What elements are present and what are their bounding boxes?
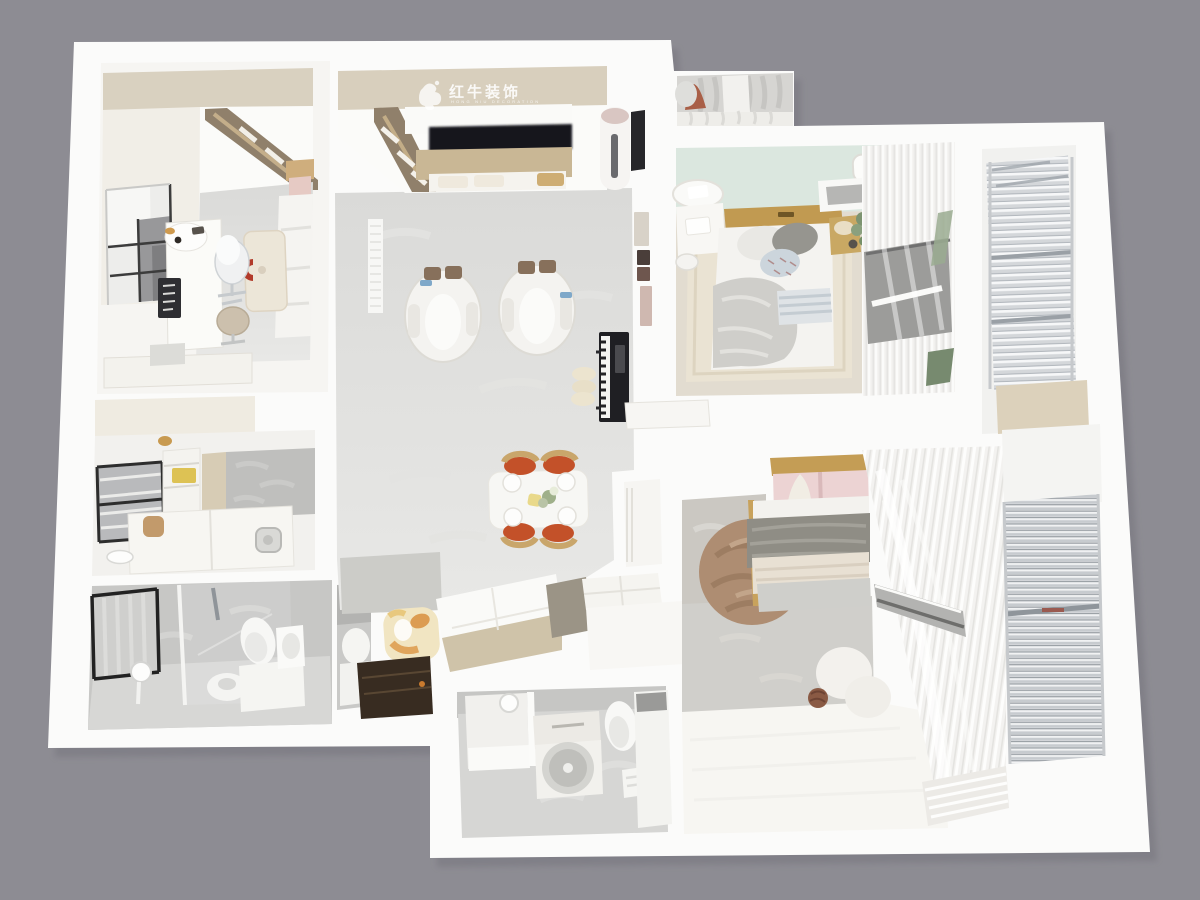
svg-text:HONG NIU DECORATION: HONG NIU DECORATION [451,99,540,104]
